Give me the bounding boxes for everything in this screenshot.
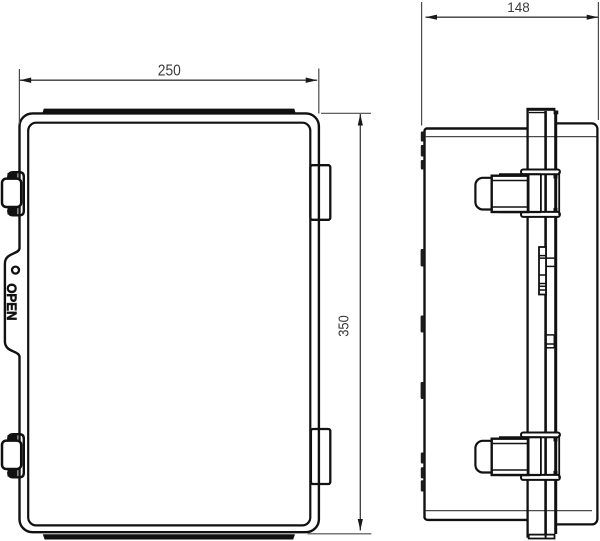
- svg-text:350: 350: [336, 315, 353, 337]
- svg-text:148: 148: [507, 0, 530, 15]
- svg-text:250: 250: [158, 62, 181, 79]
- svg-text:OPEN: OPEN: [4, 283, 20, 320]
